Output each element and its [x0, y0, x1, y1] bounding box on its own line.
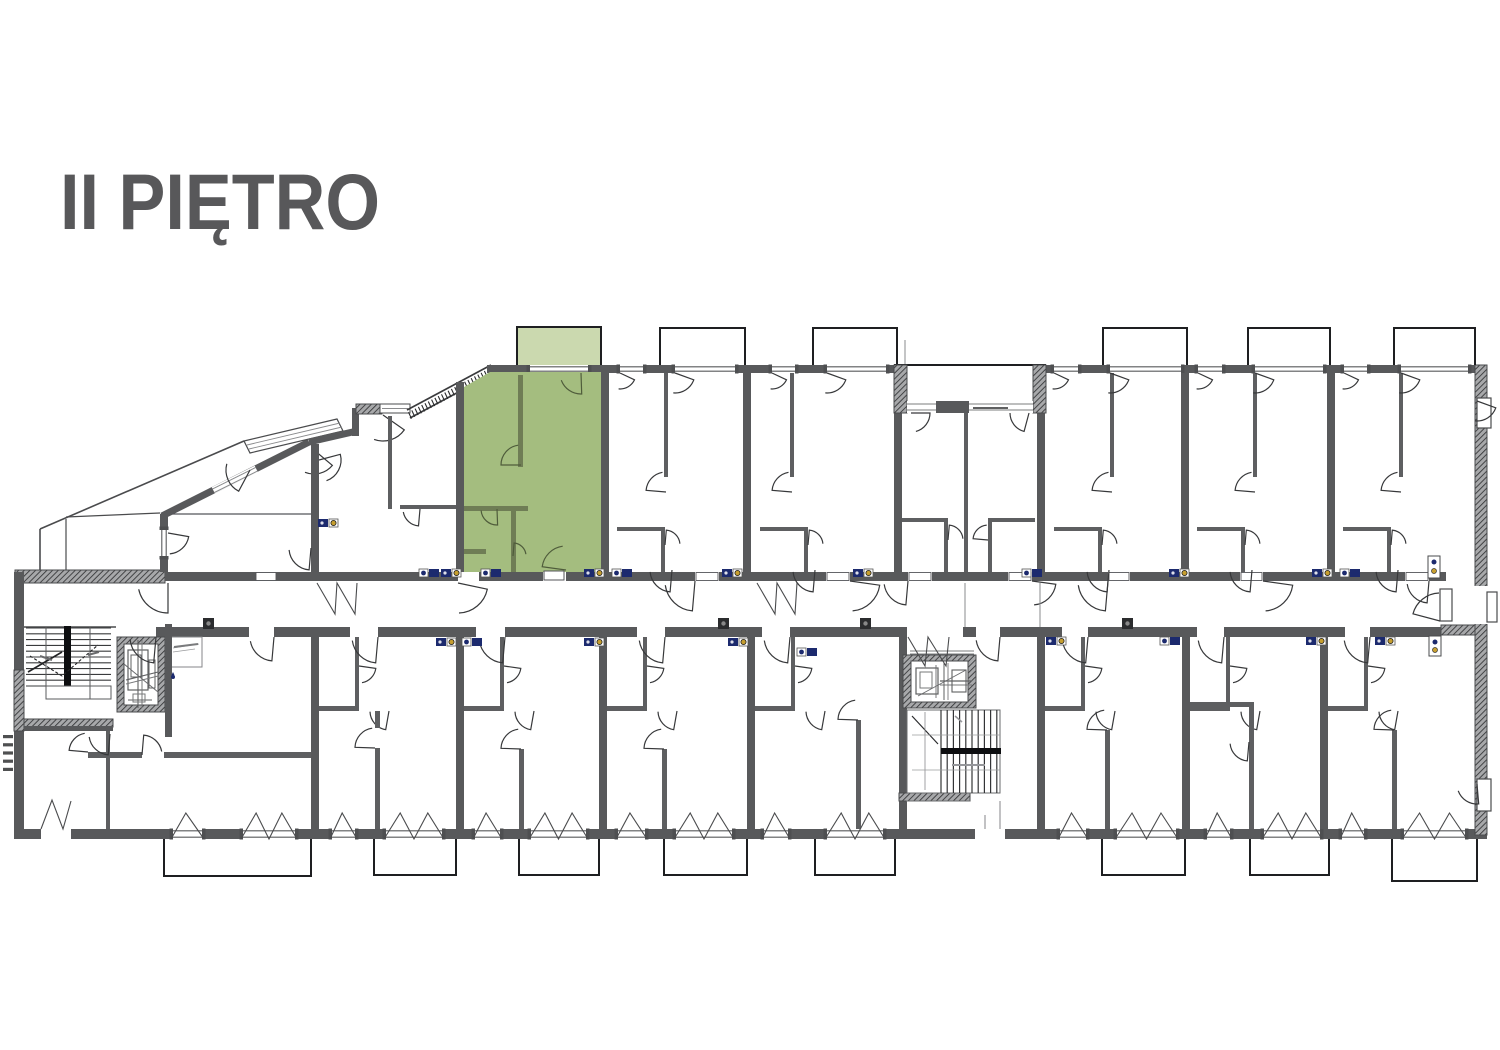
- svg-text:II PIĘTRO: II PIĘTRO: [60, 157, 380, 246]
